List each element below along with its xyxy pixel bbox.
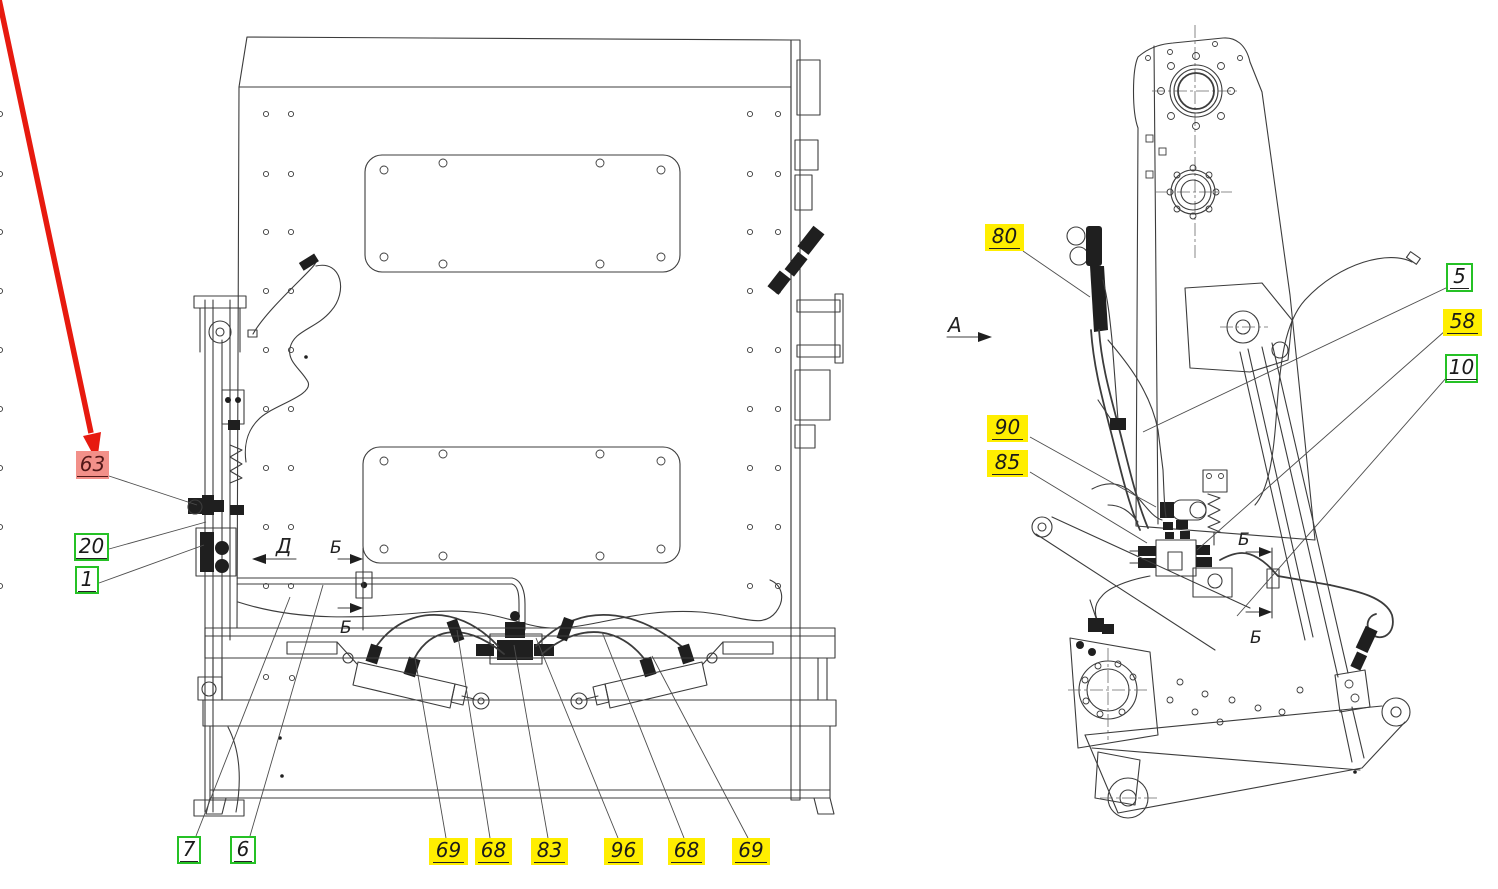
lower-flange bbox=[1146, 135, 1219, 219]
callout-63-selected: 63 bbox=[76, 451, 109, 479]
svg-text:А: А bbox=[946, 313, 962, 337]
callout-80: 80 bbox=[985, 224, 1024, 251]
section-marker-b-right: Б Б bbox=[1238, 530, 1272, 648]
pointer-arrow bbox=[0, 0, 101, 462]
loose-hose bbox=[238, 580, 782, 628]
callout-90: 90 bbox=[987, 415, 1028, 442]
callout-69-left: 69 bbox=[429, 838, 468, 865]
callout-1: 1 bbox=[75, 566, 99, 594]
manifold-tee-fittings bbox=[476, 611, 554, 664]
callout-6: 6 bbox=[230, 836, 256, 864]
left-view-drawing: Д Б Б bbox=[0, 37, 843, 838]
svg-text:Б: Б bbox=[1238, 530, 1250, 550]
diagram-line-art: Д Б Б bbox=[0, 0, 1498, 889]
callout-10: 10 bbox=[1445, 354, 1478, 383]
view-marker-a: А bbox=[946, 313, 992, 342]
svg-text:Б: Б bbox=[340, 618, 352, 638]
callout-68-left: 68 bbox=[475, 838, 512, 865]
callout-58: 58 bbox=[1443, 309, 1482, 336]
callout-68-right: 68 bbox=[668, 838, 705, 865]
rivet-hole-column bbox=[0, 111, 3, 588]
callout-69-right: 69 bbox=[732, 838, 770, 865]
section-marker-b-left: Б Б bbox=[330, 538, 363, 638]
svg-text:Б: Б bbox=[1250, 628, 1262, 648]
panel-bolt-holes bbox=[380, 159, 665, 560]
upper-flange bbox=[1146, 42, 1243, 130]
callout-83: 83 bbox=[531, 838, 568, 865]
view-marker-d: Д bbox=[252, 534, 296, 564]
hydraulic-cylinder bbox=[287, 642, 489, 709]
svg-text:Б: Б bbox=[330, 538, 342, 558]
callout-96: 96 bbox=[604, 838, 643, 865]
callout-85: 85 bbox=[987, 450, 1028, 477]
svg-text:Д: Д bbox=[275, 534, 292, 558]
right-edge-hardware bbox=[767, 60, 843, 448]
callout-20: 20 bbox=[74, 533, 109, 561]
panel-hose-loop bbox=[245, 254, 340, 462]
callout-5: 5 bbox=[1446, 263, 1473, 292]
callout-7: 7 bbox=[177, 836, 201, 864]
parts-diagram-canvas: Д Б Б bbox=[0, 0, 1498, 889]
lower-frame-bucket bbox=[1032, 517, 1410, 818]
leader-lines-right bbox=[1023, 251, 1448, 616]
lower-tray bbox=[203, 700, 836, 814]
